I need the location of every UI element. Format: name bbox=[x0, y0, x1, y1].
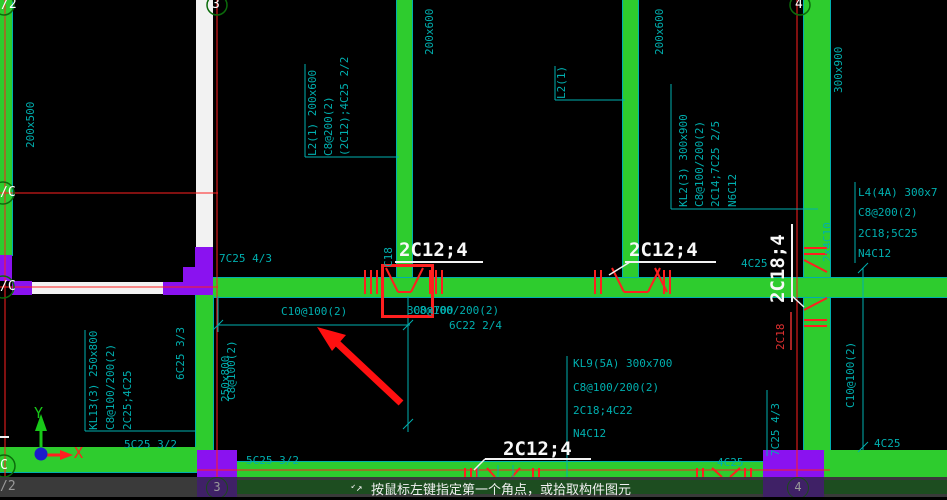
annotation-kl2-line3[interactable]: 2C14;7C25 2/5 bbox=[709, 121, 722, 207]
annotation-l4-line2[interactable]: C8@200(2) bbox=[858, 206, 918, 219]
grid-bubble-c-upper: /C bbox=[0, 186, 16, 200]
annotation-l2a-line2[interactable]: C8@200(2) bbox=[322, 96, 335, 156]
annotation-kl13-line2[interactable]: C8@100/200(2) bbox=[104, 344, 117, 430]
ucs-y-label: Y bbox=[34, 407, 43, 420]
annotation-red-2c18[interactable]: 2C18 bbox=[774, 324, 787, 351]
drawing-overlay bbox=[0, 0, 947, 500]
annotation-kl9-line2[interactable]: C8@100/200(2) bbox=[573, 381, 659, 394]
annotation-beam-a-size[interactable]: 200x600 bbox=[423, 9, 436, 55]
annotation-2c12-4-mid2[interactable]: 2C12;4 bbox=[629, 240, 698, 260]
annotation-4c25-bottom[interactable]: 4C25 bbox=[717, 456, 744, 469]
annotation-kl9-line1[interactable]: KL9(5A) 300x700 bbox=[573, 357, 672, 370]
ucs-origin-dot bbox=[35, 448, 48, 461]
annotation-l2a-line3[interactable]: (2C12);4C25 2/2 bbox=[338, 57, 351, 156]
annotation-l2b-label[interactable]: L2(1) bbox=[555, 66, 568, 99]
annotation-dim-c10[interactable]: C10@100(2) bbox=[281, 305, 347, 318]
stirrup-marks-b[interactable] bbox=[595, 268, 670, 294]
grid-bubble-3: 3 bbox=[212, 0, 220, 12]
annotation-2c12-4-bottom[interactable]: 2C12;4 bbox=[503, 439, 572, 459]
annotation-beam-b-size[interactable]: 200x600 bbox=[653, 9, 666, 55]
ucs-x-label: X bbox=[74, 447, 83, 460]
annotation-kl2-line2[interactable]: C8@100/200(2) bbox=[693, 121, 706, 207]
annotation-7c25-top[interactable]: 7C25 4/3 bbox=[219, 252, 272, 265]
status-grid-label-left: /2 bbox=[0, 479, 16, 494]
annotation-kl2-line1[interactable]: KL2(3) 300x900 bbox=[677, 114, 690, 207]
annotation-4c25-mid[interactable]: 4C25 bbox=[741, 257, 768, 270]
annotation-kl13-line1[interactable]: KL13(3) 250x800 bbox=[87, 331, 100, 430]
status-message: 按鼠标左键指定第一个角点，或拾取构件图元 bbox=[371, 479, 631, 497]
annotation-left-beam-size[interactable]: 200x500 bbox=[24, 102, 37, 148]
red-annotation-arrow[interactable] bbox=[317, 327, 401, 403]
cad-drawing-canvas[interactable]: /2 3 4 /C /C C Y X 200x500 L2(1) 200x600… bbox=[0, 0, 947, 500]
annotation-overlap-h2[interactable]: C8@100/200(2) bbox=[413, 304, 499, 317]
annotation-5c25-b[interactable]: 5C25 3/2 bbox=[246, 454, 299, 467]
stirrup-marks-e[interactable] bbox=[697, 468, 751, 477]
annotation-c18-small[interactable]: C18 bbox=[382, 247, 395, 267]
annotation-l4-line3[interactable]: 2C18;5C25 bbox=[858, 227, 918, 240]
annotation-kl13-line3[interactable]: 2C25;4C25 bbox=[121, 370, 134, 430]
annotation-2x4c10[interactable]: 2x4C10 bbox=[821, 222, 834, 262]
annotation-5c25-a[interactable]: 5C25 3/2 bbox=[124, 438, 177, 451]
annotation-2c18-4-rotated[interactable]: 2C18;4 bbox=[768, 234, 788, 303]
annotation-dim-c10-right[interactable]: C10@100(2) bbox=[844, 342, 857, 408]
grid-bubble-top-left: /2 bbox=[1, 0, 17, 12]
annotation-kl2-line4[interactable]: N6C12 bbox=[726, 174, 739, 207]
status-grid-bubble-4: 4 bbox=[787, 477, 809, 497]
annotation-beam-c-size[interactable]: 300x900 bbox=[832, 47, 845, 93]
grid-bubble-4: 4 bbox=[795, 0, 803, 12]
annotation-4c25-right[interactable]: 4C25 bbox=[874, 437, 901, 450]
dimension-lines bbox=[85, 64, 868, 477]
grid-bubble-c-lower: /C bbox=[0, 280, 16, 294]
annotation-kl9-line3[interactable]: 2C18;4C22 bbox=[573, 404, 633, 417]
stirrup-marks-d[interactable] bbox=[465, 468, 539, 477]
annotation-l4-line1[interactable]: L4(4A) 300x7 bbox=[858, 186, 937, 199]
status-bar: /2 3 4 ↙↗ 按鼠标左键指定第一个角点，或拾取构件图元 bbox=[0, 477, 947, 497]
annotation-overlap-v2[interactable]: C8@100(2) bbox=[225, 340, 238, 400]
grid-bubble-bottom-left: C bbox=[0, 459, 8, 473]
annotation-2c12-4-mid1[interactable]: 2C12;4 bbox=[399, 240, 468, 260]
status-grid-bubble-3: 3 bbox=[206, 477, 228, 497]
annotation-6c22[interactable]: 6C22 2/4 bbox=[449, 319, 502, 332]
annotation-7c25-right[interactable]: 7C25 4/3 bbox=[769, 403, 782, 456]
annotation-kl9-line4[interactable]: N4C12 bbox=[573, 427, 606, 440]
annotation-l2a-line1[interactable]: L2(1) 200x600 bbox=[306, 70, 319, 156]
annotation-l4-line4[interactable]: N4C12 bbox=[858, 247, 891, 260]
pick-cursor-icon: ↙↗ bbox=[351, 481, 362, 494]
annotation-6c25[interactable]: 6C25 3/3 bbox=[174, 327, 187, 380]
